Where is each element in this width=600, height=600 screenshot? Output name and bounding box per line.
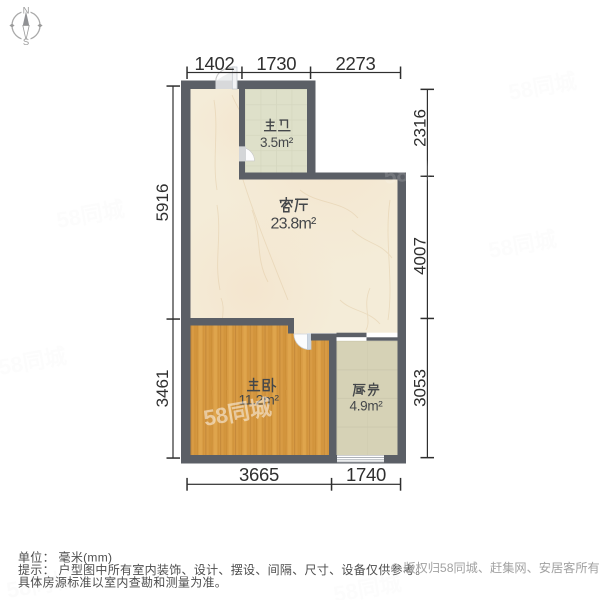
svg-text:3665: 3665 [239,464,279,485]
svg-text:2273: 2273 [336,53,376,74]
svg-text:3053: 3053 [411,369,430,407]
svg-text:3461: 3461 [153,370,172,408]
svg-text:1402: 1402 [195,53,235,74]
svg-text:4007: 4007 [411,237,430,275]
svg-text:具体房源标准以室内查勘和测量为准。: 具体房源标准以室内查勘和测量为准。 [18,575,227,590]
svg-text:© 版权归58同城、赶集网、安居客所有: © 版权归58同城、赶集网、安居客所有 [391,560,600,575]
svg-text:4.9m²: 4.9m² [349,399,383,414]
svg-text:23.8m²: 23.8m² [271,215,317,232]
svg-text:3.5m²: 3.5m² [260,135,294,150]
svg-text:1730: 1730 [256,53,296,74]
svg-text:5916: 5916 [153,184,172,222]
svg-text:1740: 1740 [346,464,386,485]
svg-text:2316: 2316 [411,109,430,147]
